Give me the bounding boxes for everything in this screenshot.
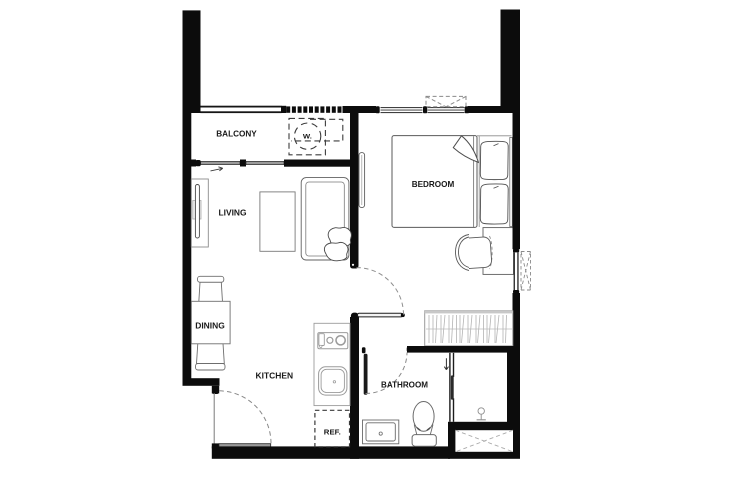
svg-text:REF.: REF. bbox=[324, 427, 341, 436]
svg-text:KITCHEN: KITCHEN bbox=[256, 371, 294, 380]
svg-text:DINING: DINING bbox=[195, 322, 225, 331]
svg-text:BEDROOM: BEDROOM bbox=[412, 180, 455, 189]
svg-text:BATHROOM: BATHROOM bbox=[381, 381, 428, 390]
svg-text:LIVING: LIVING bbox=[219, 209, 247, 218]
svg-text:W.: W. bbox=[303, 134, 312, 141]
svg-text:BALCONY: BALCONY bbox=[216, 130, 257, 139]
